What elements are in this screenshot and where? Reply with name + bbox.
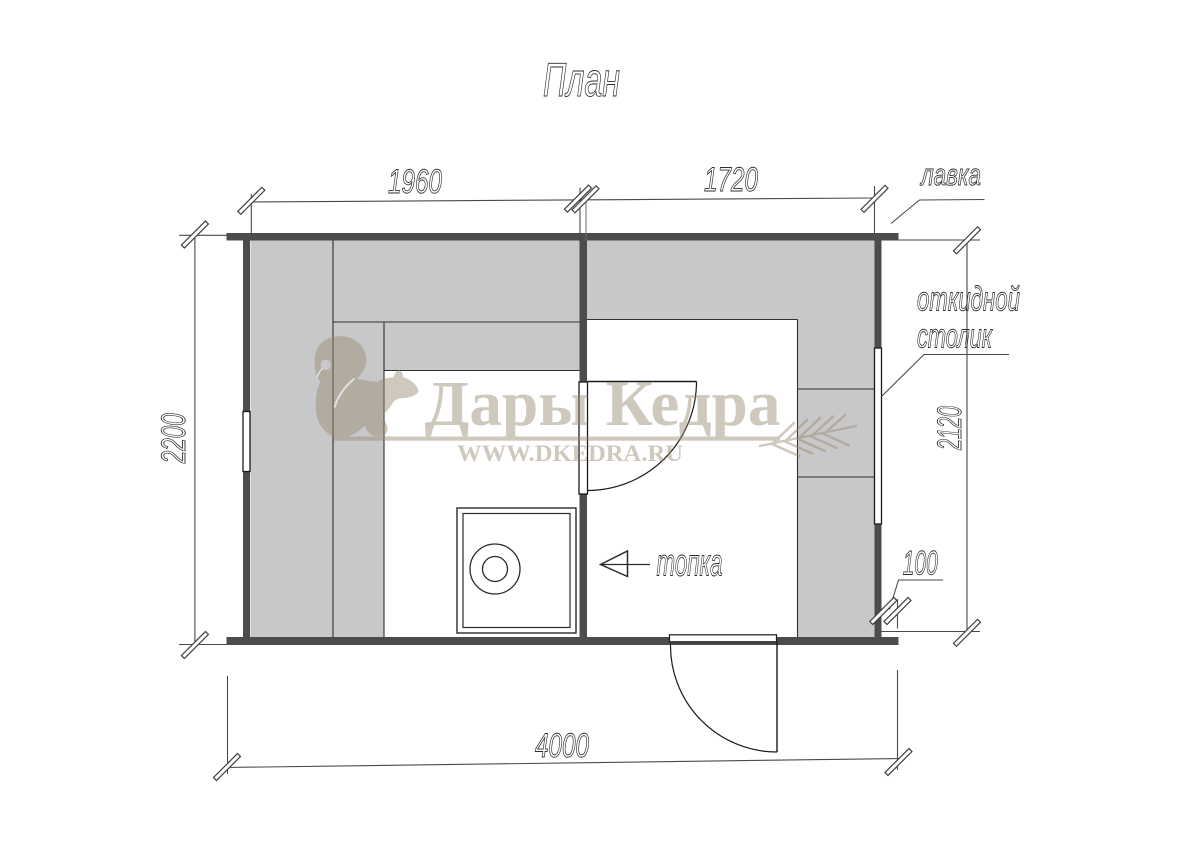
svg-text:100: 100: [903, 545, 938, 583]
svg-text:откидной: откидной: [917, 281, 1020, 319]
svg-text:WWW.DKEDRA.RU: WWW.DKEDRA.RU: [457, 441, 683, 466]
svg-text:План: План: [543, 53, 620, 106]
svg-text:лавка: лавка: [920, 157, 981, 192]
svg-text:2200: 2200: [155, 413, 193, 464]
svg-text:Дары Кедра: Дары Кедра: [425, 368, 781, 440]
svg-text:столик: столик: [917, 318, 993, 356]
svg-text:1960: 1960: [388, 163, 442, 201]
svg-text:топка: топка: [657, 543, 723, 585]
svg-text:4000: 4000: [535, 727, 589, 765]
svg-text:2120: 2120: [931, 406, 969, 451]
svg-text:1720: 1720: [704, 161, 758, 199]
